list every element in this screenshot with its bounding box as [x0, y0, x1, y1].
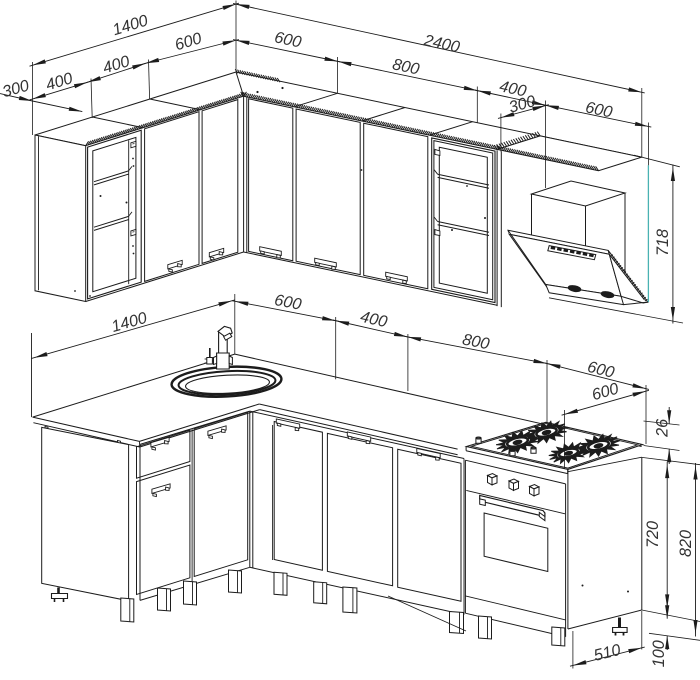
svg-text:720: 720	[644, 521, 662, 548]
svg-text:820: 820	[677, 530, 695, 557]
svg-text:718: 718	[654, 229, 672, 256]
svg-text:100: 100	[650, 640, 668, 667]
svg-text:26: 26	[653, 419, 671, 438]
